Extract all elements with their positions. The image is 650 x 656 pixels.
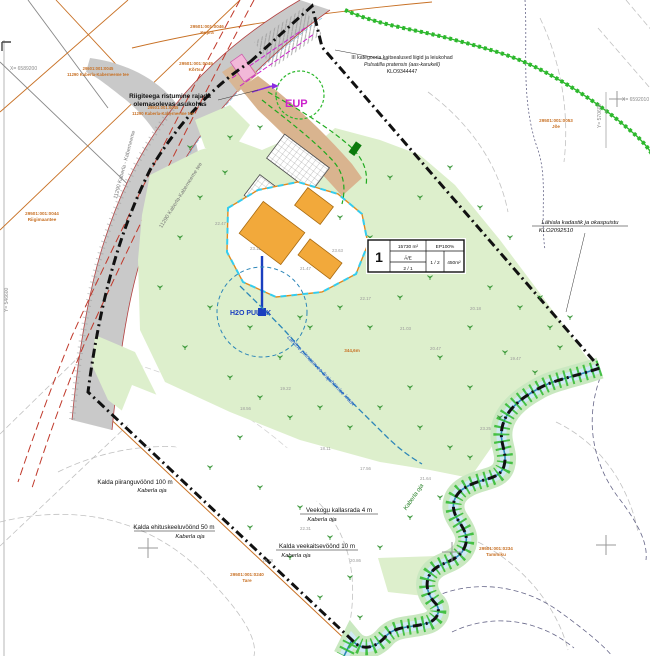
elevation-number: 23.25 (480, 426, 492, 431)
eup-label: EUP (285, 98, 308, 110)
elevation-number: 23.63 (332, 248, 344, 253)
cadastral-label-name: Kupra (200, 30, 214, 35)
coord-x1-label: X= 6589200 (10, 66, 37, 72)
elevation-number: 21.47 (300, 266, 312, 271)
tree-symbol (248, 526, 253, 531)
cadastral-label-name: Tammiku (486, 552, 506, 557)
plot-coverage: EP100% (436, 244, 455, 250)
tree-symbol (508, 236, 513, 241)
elevation-number: 21.64 (420, 476, 432, 481)
elevation-number: 20.86 (350, 558, 362, 563)
cadastral-label-name: Tare (242, 578, 252, 583)
cadastral-label-code: 29501:001:0049 (179, 61, 213, 66)
zone50-line2: Kaberla oja (175, 534, 205, 540)
plot-buildings: 1 / 2 (430, 260, 440, 266)
cadastral-label-code: 29501:001:0045 (83, 66, 114, 71)
tree-symbol (378, 546, 383, 551)
elevation-number: 19.47 (510, 356, 522, 361)
plot-data-table: 1 15730 m² EP100% Ä/E 2 / 1 1 / 2 450m² (366, 238, 466, 274)
tree-symbol (208, 466, 213, 471)
cadastral-label-code: 29501:001:0044 (25, 211, 59, 216)
tree-symbol (328, 536, 333, 541)
coord-y1-label: Y= 570600 (597, 103, 603, 128)
elevation-number: 22.17 (360, 296, 372, 301)
well-label: H2O PUURK (230, 310, 271, 317)
cadastral-label-name: Jõe (552, 124, 560, 129)
zone50-line1: Kalda ehituskeeluvöönd 50 m (133, 524, 214, 531)
elevation-number: 18.11 (320, 446, 331, 451)
habitat-note-line1: Lähiala kadastik ja okaspuistu (541, 220, 619, 226)
tree-symbol (258, 126, 263, 131)
elevation-number: 20.47 (430, 346, 442, 351)
elevation-number: 17.56 (360, 466, 372, 471)
elevation-number: 18.56 (240, 406, 252, 411)
cadastral-label-name: Riigimaantee (28, 217, 57, 222)
cadastral-label-name: Kõrtsu (189, 67, 204, 72)
tree-symbol (258, 486, 263, 491)
site-plan-map-stage: 22.4723.1121.4723.6322.1721.0320.4720.18… (0, 0, 650, 656)
site-plan-map: 22.4723.1121.4723.6322.1721.0320.4720.18… (0, 0, 650, 656)
cadastral-label-code: 29501:001:0234 (479, 546, 513, 551)
tree-symbol (568, 316, 573, 321)
cadastral-label-name: 11290 Kaberla-Kaberneeme tee (132, 111, 194, 116)
plot-area: 15730 m² (398, 244, 419, 250)
tree-symbol (448, 166, 453, 171)
cadastral-label-name: 11290 Kaberla-Kaberneeme tee (67, 72, 129, 77)
cadastral-label-code: 29501:001:0053 (539, 118, 573, 123)
drain-length: 344,6m (344, 348, 360, 353)
hedge-line (345, 10, 650, 162)
tree-symbol (478, 206, 483, 211)
elevation-number: 19.78 (262, 558, 274, 563)
kallasrada-line1: Veekogu kallasrada 4 m (306, 507, 372, 514)
species-note-line3: KLO9344447 (387, 69, 418, 75)
elevation-number: 19.22 (280, 386, 292, 391)
cadastral-label-code: 29501:001:0045 (148, 105, 179, 110)
cadastral-label-code: 29501:001:0240 (230, 572, 264, 577)
zone100-line2: Kaberla oja (137, 488, 167, 494)
elevation-number: 23.11 (250, 246, 261, 251)
habitat-note-line2: KLO2092510 (539, 228, 574, 234)
map-frame-marks (2, 40, 11, 656)
elevation-number: 20.18 (470, 306, 482, 311)
tree-symbol (358, 616, 363, 621)
tree-symbol (318, 596, 323, 601)
zone10-line1: Kalda veekaitsevöönd 10 m (279, 543, 355, 550)
kallasrada-line2: Kaberla oja (307, 517, 337, 523)
species-note-line1: III kategooria kaitsealused liigid ja le… (351, 55, 452, 61)
crossing-note-line1: Riigiteega ristumine rajada (129, 93, 211, 100)
coord-x2-label: X= 6592010 (622, 97, 649, 103)
elevation-number: 21.03 (400, 326, 412, 331)
coord-y2-label: Y= 546600 (4, 287, 10, 312)
tree-symbol (298, 506, 303, 511)
plot-floors: 2 / 1 (403, 266, 413, 272)
cadastral-label-code: 29501:001:0046 (190, 24, 224, 29)
plot-number: 1 (375, 249, 383, 265)
elevation-number: 22.47 (215, 221, 227, 226)
zone100-line1: Kalda piiranguvöönd 100 m (97, 479, 172, 486)
plot-use: Ä/E (404, 255, 412, 262)
species-note-line2: Pulsatilla pratensis (aas-karukell) (364, 62, 440, 68)
context-lines-dark (0, 0, 140, 196)
plot-building-area: 450m² (447, 260, 461, 266)
zone10-line2: Kaberla oja (281, 553, 311, 559)
elevation-number: 22.31 (300, 526, 312, 531)
